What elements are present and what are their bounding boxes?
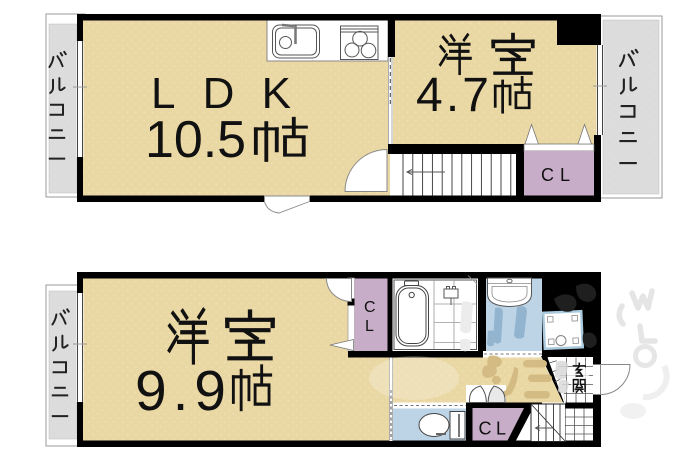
svg-text:CL: CL [479, 419, 511, 439]
svg-text:4.7: 4.7 [416, 69, 489, 122]
svg-text:9.9: 9.9 [135, 359, 226, 423]
svg-text:L: L [365, 318, 374, 335]
svg-text:10.5: 10.5 [145, 111, 246, 169]
svg-text:CL: CL [541, 165, 576, 185]
svg-text:C: C [364, 299, 376, 316]
